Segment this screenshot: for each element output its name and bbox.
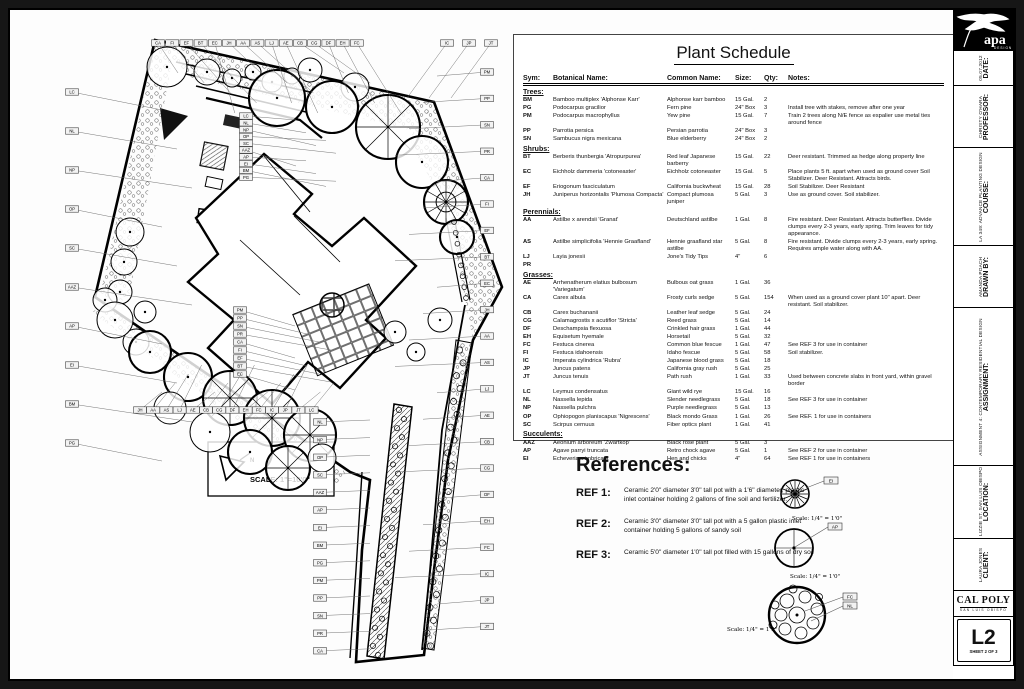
svg-text:LJ: LJ [269, 41, 273, 46]
svg-text:BM: BM [243, 168, 250, 173]
svg-text:FC: FC [484, 545, 490, 550]
svg-text:BT: BT [198, 41, 204, 46]
plant-callout: PG [314, 560, 327, 566]
plant-callout: BM [240, 167, 253, 173]
svg-text:NP: NP [243, 127, 249, 132]
svg-text:AAZ: AAZ [242, 148, 251, 153]
title-block: apa DESIGN 05.07.2012DATE:CHRISTY O'HARA… [953, 10, 1014, 679]
ref1-diagram: EI Scale: 1/4" = 1'0" [762, 472, 872, 524]
ref3-callout-1: FC [847, 594, 854, 599]
svg-text:AP: AP [69, 324, 75, 329]
title-block-cell-date: 05.07.2012DATE: [953, 50, 1014, 86]
svg-text:CB: CB [484, 439, 490, 444]
plant-callout: IC [481, 570, 494, 576]
svg-text:OP: OP [69, 207, 75, 212]
tree-symbol [424, 180, 468, 224]
svg-text:LC: LC [69, 90, 74, 95]
title-block-cell-drawnby: AMANDA POACHDRAWN BY: [953, 245, 1014, 309]
ref3-callout-2: NL [847, 603, 853, 608]
ref3-scale: Scale: 1/4" = 1'0" [727, 627, 778, 633]
schedule-row: PGPodocarpus graciliorFern pine24" Box3I… [523, 105, 944, 112]
plant-callout: AAZ [66, 284, 79, 290]
svg-text:OP: OP [317, 455, 323, 460]
title-block-value: 05.07.2012 [978, 53, 983, 83]
svg-text:SN: SN [484, 123, 490, 128]
svg-text:BM: BM [69, 402, 76, 407]
svg-text:FI: FI [170, 41, 174, 46]
plant-callout: BM [314, 542, 327, 548]
svg-text:PG: PG [317, 561, 323, 566]
plant-callout: FC [350, 40, 363, 46]
plant-callout: NP [314, 436, 327, 442]
svg-text:IC: IC [485, 571, 489, 576]
plant-callout: SN [234, 323, 247, 329]
schedule-row: CBCarex buchananiiLeather leaf sedge5 Ga… [523, 310, 944, 317]
plant-callout: BT [234, 363, 247, 369]
dark-wedge-structure [160, 108, 188, 140]
plant-callout: AAZ [314, 489, 327, 495]
svg-text:JT: JT [485, 624, 490, 629]
reference-label: REF 1: [576, 487, 624, 505]
svg-text:PP: PP [484, 96, 490, 101]
plant-callout: LC [305, 407, 318, 413]
svg-text:LJ: LJ [485, 387, 489, 392]
tree-symbol [428, 308, 452, 332]
plant-callout: BT [481, 254, 494, 260]
svg-text:FI: FI [485, 202, 489, 207]
plant-callout: PM [481, 69, 494, 75]
plant-callout: NP [240, 126, 253, 132]
svg-text:CA: CA [155, 41, 161, 46]
page-background: { "plan": { "scale_label": "SCALE: 1\"=1… [0, 0, 1024, 689]
schedule-column-header: Qty: [764, 75, 785, 82]
schedule-row: LJLayia jonesiiJone's Tidy Tips4"6 [523, 254, 944, 261]
svg-text:DF: DF [484, 492, 490, 497]
tree-symbol [190, 412, 230, 452]
svg-text:CA: CA [484, 175, 490, 180]
svg-text:EF: EF [237, 356, 243, 361]
driveway-gravel-strip [422, 340, 472, 650]
svg-text:AA: AA [484, 334, 490, 339]
svg-text:EF: EF [184, 41, 190, 46]
plant-callout: CG [213, 407, 226, 413]
svg-text:AE: AE [190, 408, 196, 413]
title-block-value: LA 349: ADVANCE PLANTING DESIGN [978, 150, 983, 243]
title-block-label: DRAWN BY: [983, 248, 990, 306]
plant-callout: JT [481, 623, 494, 629]
schedule-column-header: Botanical Name: [553, 75, 664, 82]
tree-symbol [129, 331, 171, 373]
plant-callout: SC [66, 245, 79, 251]
title-block-value: LAURA JONES [978, 541, 983, 589]
schedule-row: BTBerberis thunbergia 'Atropurpurea'Red … [523, 154, 944, 168]
plant-callout: AE [481, 412, 494, 418]
plant-callout: CG [481, 465, 494, 471]
schedule-column-header: Common Name: [667, 75, 732, 82]
plant-callout: AA [147, 407, 160, 413]
schedule-row: JTJuncus tenuisPath rush1 Gal.33Used bet… [523, 374, 944, 388]
svg-text:AE: AE [283, 41, 289, 46]
svg-text:JH: JH [137, 408, 142, 413]
schedule-row: PR [523, 262, 944, 269]
svg-text:NP: NP [317, 437, 323, 442]
svg-text:EF: EF [484, 228, 490, 233]
tree-symbol [249, 70, 305, 126]
schedule-row: ECEichholz dammeria 'cotoneaster'Eichhol… [523, 169, 944, 183]
plant-callout: NL [314, 419, 327, 425]
hatched-planter [200, 142, 228, 170]
sheet-code: L2 [971, 627, 996, 648]
svg-text:AP: AP [317, 508, 323, 513]
svg-text:EC: EC [212, 41, 218, 46]
svg-text:LJ: LJ [177, 408, 181, 413]
schedule-row: FIFestuca idahoensisIdaho fescue5 Gal.58… [523, 350, 944, 357]
svg-text:SC: SC [317, 473, 323, 478]
plant-callout: EF [234, 355, 247, 361]
svg-text:CG: CG [484, 466, 490, 471]
svg-text:JP: JP [283, 408, 288, 413]
svg-text:EI: EI [244, 161, 248, 166]
svg-text:PR: PR [484, 149, 490, 154]
schedule-row: FCFestuca cinereaCommon blue fescue1 Gal… [523, 342, 944, 349]
svg-text:PG: PG [69, 441, 75, 446]
calpoly-branding: CAL POLY SAN LUIS OBISPO [953, 590, 1014, 617]
title-block-value: CHRISTY O'HARA [978, 88, 983, 146]
firm-logo: apa DESIGN [953, 10, 1014, 52]
plant-callout: IC [266, 407, 279, 413]
plant-callout: EH [239, 407, 252, 413]
svg-text:DF: DF [230, 408, 236, 413]
svg-text:FI: FI [238, 348, 242, 353]
plant-callout: PR [314, 630, 327, 636]
plant-callout: OP [240, 133, 253, 139]
schedule-row: NLNassella lepidaSlender needlegrass5 Ga… [523, 397, 944, 404]
plant-callout: BT [194, 40, 207, 46]
svg-text:JH: JH [484, 307, 489, 312]
schedule-row: OPOphiopogon planiscapus 'Nigrescens'Bla… [523, 414, 944, 421]
plant-callout: JP [481, 597, 494, 603]
svg-text:IC: IC [445, 41, 449, 46]
schedule-section-header: Shrubs: [523, 146, 944, 153]
schedule-row: PPParrotia persicaPersian parrotia24" Bo… [523, 128, 944, 135]
svg-text:CA: CA [317, 649, 323, 654]
plant-schedule-rows: Trees:BMBamboo multiplex 'Alphonse Karr'… [523, 89, 944, 463]
plant-callout: CA [481, 174, 494, 180]
plant-callout: JH [481, 306, 494, 312]
svg-text:AS: AS [484, 360, 490, 365]
plant-callout: CB [200, 407, 213, 413]
schedule-row: EHEquisetum hyemaleHorsetail5 Gal.32 [523, 334, 944, 341]
plant-callout: DF [322, 40, 335, 46]
plant-callout: EC [481, 280, 494, 286]
schedule-row: JPJuncus patensCalifornia gray rush5 Gal… [523, 366, 944, 373]
title-block-label: COURSE: [983, 150, 990, 243]
plant-callout: DF [481, 491, 494, 497]
svg-text:EH: EH [484, 519, 490, 524]
schedule-column-header: Size: [735, 75, 761, 82]
plant-callout: JT [292, 407, 305, 413]
calpoly-name: CAL POLY [957, 596, 1011, 606]
schedule-section-header: Grasses: [523, 272, 944, 279]
tree-symbol [223, 69, 241, 87]
schedule-row: EFEriogonum fasciculatumCalifornia buckw… [523, 184, 944, 191]
svg-text:CB: CB [203, 408, 209, 413]
plant-schedule-header: Sym:Botanical Name:Common Name:Size:Qty:… [523, 75, 944, 86]
svg-text:PM: PM [317, 578, 324, 583]
plant-callout: IC [441, 40, 454, 46]
house-footprint [188, 154, 416, 404]
svg-text:EH: EH [340, 41, 346, 46]
plant-callout: SC [240, 140, 253, 146]
svg-text:AS: AS [164, 408, 170, 413]
plant-callout: PG [240, 174, 253, 180]
schedule-row: DFDeschampsia flexuosaCrinkled hair gras… [523, 326, 944, 333]
svg-text:AP: AP [243, 155, 249, 160]
svg-text:SC: SC [243, 141, 249, 146]
reference-label: REF 2: [576, 518, 624, 536]
plant-callout: PP [314, 595, 327, 601]
tree-symbol [407, 343, 425, 361]
svg-text:PP: PP [237, 316, 243, 321]
title-block-value: LIZZIE ST. SAN LUIS OBISPO [978, 468, 983, 536]
driveway-planting-strip [367, 404, 412, 659]
plant-callout: AE [279, 40, 292, 46]
schedule-row: CACarex albulaFrosty curls sedge5 Gal.15… [523, 295, 944, 309]
plant-callout: LJ [481, 386, 494, 392]
svg-text:NL: NL [69, 129, 75, 134]
svg-text:CB: CB [297, 41, 303, 46]
ref3-diagram: FC NL Scale: 1/4" = 1'0" [725, 575, 885, 663]
title-block-cell-assignment: ASSIGNMENT 4: CONTEMPORARY RESIDENTIAL D… [953, 307, 1014, 467]
plant-callout: AA [481, 333, 494, 339]
plant-callout: AS [251, 40, 264, 46]
plant-callout: FI [166, 40, 179, 46]
tree-symbol [306, 81, 358, 133]
svg-text:JP: JP [467, 41, 472, 46]
title-block-label: CLIENT: [983, 541, 990, 589]
svg-text:DF: DF [326, 41, 332, 46]
tree-symbol [111, 249, 137, 275]
svg-text:LC: LC [243, 114, 248, 119]
plant-callout: FI [234, 347, 247, 353]
plant-callout: CA [234, 339, 247, 345]
svg-text:PR: PR [237, 332, 243, 337]
svg-text:SN: SN [237, 324, 243, 329]
plant-callout: OP [314, 454, 327, 460]
svg-text:SN: SN [317, 613, 323, 618]
plant-callout: CA [314, 648, 327, 654]
tree-symbol [298, 58, 322, 82]
plant-callout: SC [314, 472, 327, 478]
plant-callout: JP [463, 40, 476, 46]
plant-callout: EF [180, 40, 193, 46]
svg-text:EI: EI [70, 363, 74, 368]
svg-text:NL: NL [243, 121, 249, 126]
schedule-row: JHJuniperus horizontalis 'Plumosa Compac… [523, 192, 944, 206]
svg-text:CG: CG [311, 41, 317, 46]
schedule-row: AAAstilbe x arendsii 'Granat'Deutschland… [523, 217, 944, 238]
tree-symbol [97, 302, 133, 338]
svg-text:JH: JH [226, 41, 231, 46]
plant-callout: NL [240, 120, 253, 126]
plant-callout: OP [66, 206, 79, 212]
ref1-callout: EI [829, 478, 833, 483]
plant-callout: CA [152, 40, 165, 46]
svg-text:LC: LC [309, 408, 314, 413]
schedule-column-header: Notes: [788, 75, 944, 82]
plant-callout: EI [314, 524, 327, 530]
schedule-row: NPNassella pulchraPurple needlegrass5 Ga… [523, 405, 944, 412]
plant-callout: PM [314, 577, 327, 583]
plant-callout: EH [336, 40, 349, 46]
plant-callout: AS [481, 359, 494, 365]
plant-callout: EI [66, 362, 79, 368]
round-paver-feature [320, 293, 344, 317]
plant-callout: BM [66, 401, 79, 407]
svg-text:AA: AA [240, 41, 246, 46]
ref2-diagram: AP Scale: 1/4" = 1'0" [762, 520, 872, 582]
planter-box [205, 176, 223, 189]
schedule-section-header: Trees: [523, 89, 944, 96]
tree-symbol [194, 59, 220, 85]
title-block-label: PROFESSOR: [983, 88, 990, 146]
title-block-label: ASSIGNMENT: [983, 310, 990, 464]
svg-text:JT: JT [296, 408, 301, 413]
calpoly-subtext: SAN LUIS OBISPO [960, 607, 1007, 613]
plant-callout: DF [226, 407, 239, 413]
plant-callout: CG [308, 40, 321, 46]
title-block-value: ASSIGNMENT 4: CONTEMPORARY RESIDENTIAL D… [978, 310, 983, 464]
drawing-sheet: N SCALE: 1"=10'0" CAFIEFBTECJHAAASLJAECB… [8, 8, 1016, 681]
title-block-cell-course: LA 349: ADVANCE PLANTING DESIGNCOURSE: [953, 147, 1014, 246]
svg-text:EC: EC [484, 281, 490, 286]
schedule-section-header: Succulents: [523, 431, 944, 438]
svg-text:FC: FC [256, 408, 262, 413]
plant-callout: AP [314, 507, 327, 513]
schedule-row: LCLeymus condensatusGiant wild rye15 Gal… [523, 389, 944, 396]
plant-callout: SN [481, 122, 494, 128]
plant-callout: AP [66, 323, 79, 329]
svg-text:CG: CG [216, 408, 222, 413]
plant-schedule-title: Plant Schedule [674, 43, 794, 65]
title-block-cell-location: LIZZIE ST. SAN LUIS OBISPOLOCATION: [953, 465, 1014, 539]
plant-callout: FC [481, 544, 494, 550]
plant-callout: LC [240, 113, 253, 119]
plant-callout: PP [234, 315, 247, 321]
tree-symbol [266, 446, 310, 490]
plant-callout: JH [223, 40, 236, 46]
schedule-row: ICImperata cylindrica 'Rubra'Japanese bl… [523, 358, 944, 365]
plant-callout: LJ [265, 40, 278, 46]
schedule-column-header: Sym: [523, 75, 550, 82]
svg-text:PP: PP [317, 596, 323, 601]
reference-label: REF 3: [576, 549, 624, 561]
title-block-value: AMANDA POACH [978, 248, 983, 306]
schedule-row: AEArrhenatherum elatius bulbosum 'Varieg… [523, 280, 944, 294]
logo-subtext: DESIGN [994, 46, 1012, 50]
svg-text:AE: AE [484, 413, 490, 418]
plant-callout: LC [66, 89, 79, 95]
svg-text:NL: NL [317, 420, 323, 425]
svg-text:JP: JP [485, 598, 490, 603]
plant-callout: EF [481, 227, 494, 233]
plant-callout: CB [481, 438, 494, 444]
svg-text:BT: BT [484, 255, 490, 260]
plant-callout: PR [234, 331, 247, 337]
plant-callout: NL [66, 128, 79, 134]
svg-text:OP: OP [243, 134, 249, 139]
svg-text:AA: AA [150, 408, 156, 413]
plant-callout: LJ [173, 407, 186, 413]
svg-text:PM: PM [237, 308, 244, 313]
plant-callout: FC [252, 407, 265, 413]
schedule-row: BMBamboo multiplex 'Alphonse Karr'Alphon… [523, 97, 944, 104]
plant-callout: JT [485, 40, 498, 46]
plant-callout: AS [160, 407, 173, 413]
plant-schedule: Plant Schedule Sym:Botanical Name:Common… [513, 34, 954, 441]
svg-text:AS: AS [255, 41, 261, 46]
svg-text:AAZ: AAZ [316, 490, 325, 495]
plant-callout: SN [314, 612, 327, 618]
svg-text:IC: IC [270, 408, 274, 413]
plant-callout: PR [481, 148, 494, 154]
schedule-row: SNSambucus nigra mexicanaBlue elderberry… [523, 136, 944, 143]
plant-callout: FI [481, 201, 494, 207]
tree-symbol [147, 47, 187, 87]
plant-callout: PG [66, 440, 79, 446]
svg-text:NP: NP [69, 168, 75, 173]
sheet-number-cell: L2 SHEET 2 OF 3 [953, 616, 1014, 666]
svg-text:PR: PR [317, 631, 323, 636]
title-block-cell-client: LAURA JONESCLIENT: [953, 538, 1014, 592]
schedule-row: SCScirpus cernuusFiber optics plant1 Gal… [523, 422, 944, 429]
plant-callout: JH [134, 407, 147, 413]
svg-text:BT: BT [237, 364, 243, 369]
tree-symbol [384, 321, 406, 343]
svg-text:PG: PG [243, 175, 249, 180]
plant-callout: CB [294, 40, 307, 46]
plant-callout: AAZ [240, 147, 253, 153]
tree-symbol [440, 220, 474, 254]
plant-callout: EH [481, 518, 494, 524]
svg-text:EI: EI [318, 525, 322, 530]
plant-callout: AE [186, 407, 199, 413]
tree-symbol [116, 218, 144, 246]
plant-callout: JP [279, 407, 292, 413]
schedule-row: PMPodocarpus macrophyllusYew pine15 Gal.… [523, 113, 944, 127]
schedule-row: CGCalamagrostis x acutiflor 'Stricta'Ree… [523, 318, 944, 325]
svg-text:FC: FC [354, 41, 360, 46]
plant-callout: AP [240, 154, 253, 160]
title-block-label: LOCATION: [983, 468, 990, 536]
svg-text:EH: EH [243, 408, 249, 413]
svg-text:BM: BM [317, 543, 324, 548]
plant-callout: EC [208, 40, 221, 46]
tree-symbol [134, 301, 156, 323]
plant-callout: AA [237, 40, 250, 46]
tree-logo-icon: apa DESIGN [954, 11, 1012, 50]
title-block-cell-professor: CHRISTY O'HARAPROFESSOR: [953, 85, 1014, 149]
plant-callout: EI [240, 160, 253, 166]
svg-text:JT: JT [489, 41, 494, 46]
sheet-count-label: SHEET 2 OF 3 [970, 649, 998, 654]
plant-callout: PM [234, 307, 247, 313]
svg-text:PM: PM [484, 70, 491, 75]
schedule-section-header: Perennials: [523, 209, 944, 216]
schedule-row: AAZAeonium arboreum 'Zwartkop'Black rose… [523, 440, 944, 447]
plant-callout: NP [66, 167, 79, 173]
schedule-row: ASAstilbe simplicifolia 'Hennie Graaflan… [523, 239, 944, 253]
